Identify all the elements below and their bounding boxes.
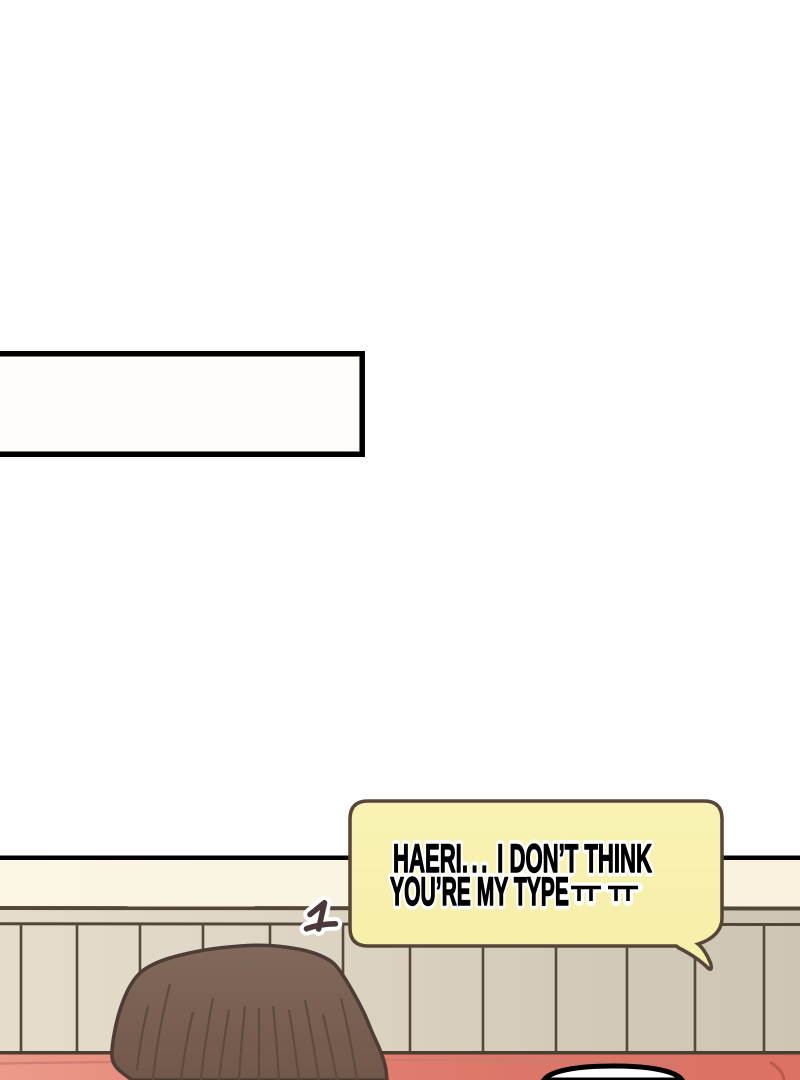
svg-text:YOU’RE MY TYPE: YOU’RE MY TYPE: [390, 869, 569, 914]
